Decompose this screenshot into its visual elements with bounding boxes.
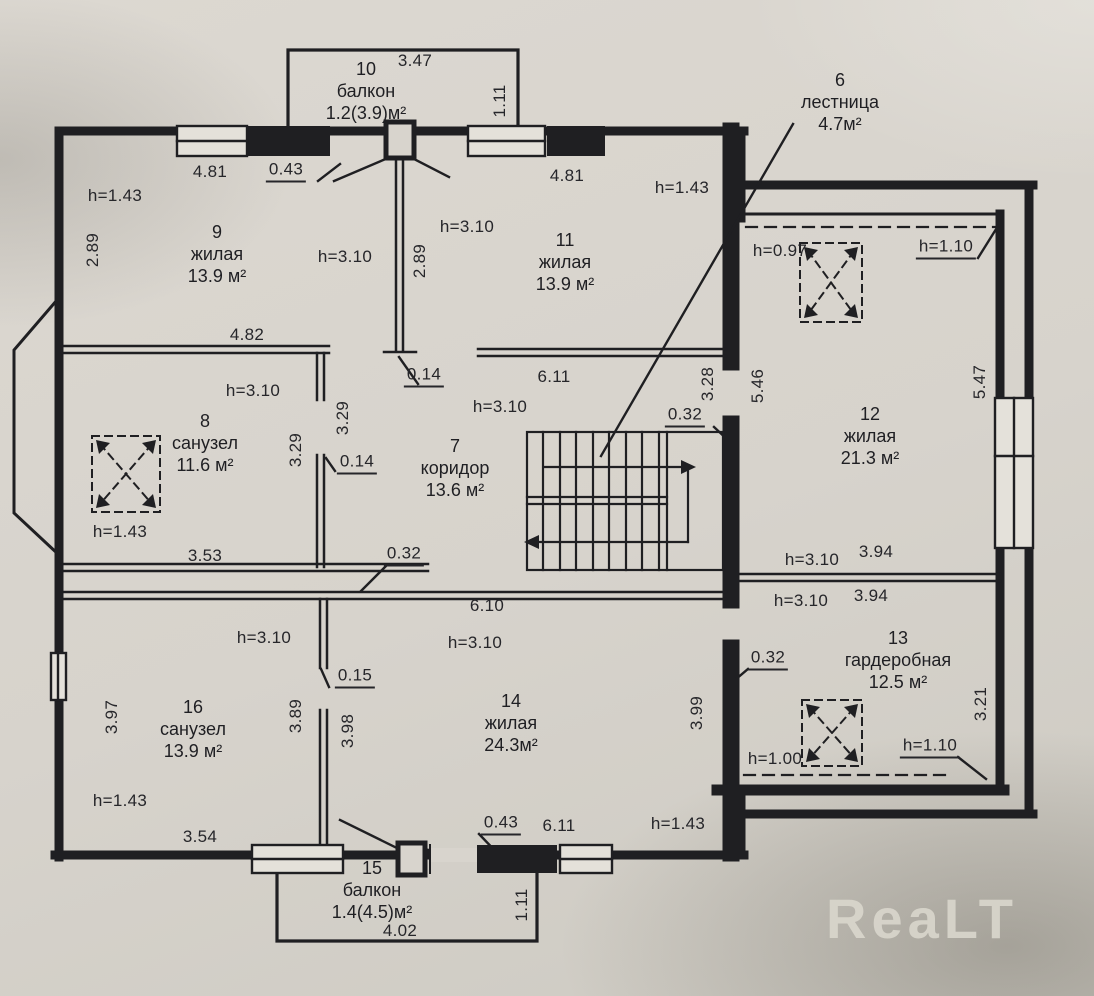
dim-partition-9-11: 2.89 — [410, 244, 430, 278]
dim-balcony15-depth: 1.11 — [512, 888, 532, 921]
floor-plan-drawing — [0, 0, 1094, 996]
room-label-10: 10балкон1.2(3.9)м² — [326, 59, 406, 125]
h-room11-right: h=1.43 — [655, 178, 709, 198]
h-room16: h=3.10 — [237, 628, 291, 648]
dim-partition16-gap: 0.15 — [335, 666, 375, 689]
dim-duct-width: 0.32 — [384, 544, 424, 567]
stairs — [527, 432, 723, 570]
dim-balcony15-width: 4.02 — [383, 921, 417, 941]
room-label-16: 16санузел13.9 м² — [160, 697, 226, 763]
dim-room9-left: 2.89 — [83, 233, 103, 267]
h-room12-bottom: h=3.10 — [785, 550, 839, 570]
dim-room9-top: 4.81 — [193, 162, 227, 182]
dim-room8-top: 4.82 — [230, 325, 264, 345]
dim-room16-left: 3.97 — [102, 700, 122, 734]
dim-balcony10-depth: 1.11 — [490, 84, 510, 117]
dim-corridor-bottom: 6.10 — [470, 596, 504, 616]
h-room9-left: h=1.43 — [88, 186, 142, 206]
dim-partition8-width: 0.14 — [337, 452, 377, 475]
h-room8-left: h=1.43 — [93, 522, 147, 542]
dim-room11-bottom: 6.11 — [537, 367, 570, 387]
dim-room13-top: 3.94 — [854, 586, 888, 606]
dim-room12-left: 5.46 — [748, 369, 768, 403]
dim-room11-top: 4.81 — [550, 166, 584, 186]
wardrobe-arrowheads — [96, 247, 858, 762]
h-room8: h=3.10 — [226, 381, 280, 401]
dim-stairwall-width: 0.32 — [665, 405, 705, 428]
room-label-8: 8санузел11.6 м² — [172, 411, 238, 477]
dim-top-offset: 0.43 — [266, 160, 306, 183]
h-corridor: h=3.10 — [473, 397, 527, 417]
dim-room11-right: 3.28 — [698, 367, 718, 401]
dim-room12-bottom: 3.94 — [859, 542, 893, 562]
room-label-11: 11жилая13.9 м² — [536, 230, 594, 296]
dim-room8-right: 3.29 — [286, 433, 306, 467]
h-room9: h=3.10 — [318, 247, 372, 267]
room-label-14: 14жилая24.3м² — [484, 691, 537, 757]
dim-corridor-left: 3.29 — [333, 401, 353, 435]
room-label-13: 13гардеробная12.5 м² — [845, 628, 951, 694]
dim-room14-right: 3.99 — [687, 696, 707, 730]
room-label-7: 7коридор13.6 м² — [421, 436, 490, 502]
h-room12-edge: h=1.10 — [916, 237, 976, 260]
room-label-9: 9жилая13.9 м² — [188, 222, 246, 288]
room-label-12: 12жилая21.3 м² — [841, 404, 899, 470]
h-room13-top: h=3.10 — [774, 591, 828, 611]
dim-room13-wall: 0.32 — [748, 648, 788, 671]
h-room12-low: h=0.97 — [753, 241, 807, 261]
dim-balcony-door: 0.43 — [481, 813, 521, 836]
dim-partition-width: 0.14 — [404, 365, 444, 388]
dim-room13-right: 3.21 — [971, 687, 991, 721]
h-room14: h=3.10 — [448, 633, 502, 653]
dim-room16-bottom: 3.54 — [183, 827, 217, 847]
dim-balcony10-width: 3.47 — [398, 51, 432, 71]
h-room13-edge: h=1.10 — [900, 736, 960, 759]
chimney-squares — [386, 122, 425, 875]
realt-watermark: ReaLT — [826, 886, 1076, 951]
h-room11: h=3.10 — [440, 217, 494, 237]
room-label-6: 6лестница4.7м² — [801, 70, 879, 136]
floor-plan-photo: 10балкон1.2(3.9)м² 6лестница4.7м² 9жилая… — [0, 0, 1094, 996]
left-bay-outline — [14, 300, 59, 555]
dim-room16-right: 3.89 — [286, 699, 306, 733]
dim-room14-bottom: 6.11 — [542, 816, 575, 836]
dim-room12-right: 5.47 — [970, 365, 990, 399]
dim-room8-bottom: 3.53 — [188, 546, 222, 566]
dim-room14-left: 3.98 — [338, 714, 358, 748]
room-label-15: 15балкон1.4(4.5)м² — [332, 858, 412, 924]
h-room13-low: h=1.00 — [748, 749, 802, 769]
h-room16-left: h=1.43 — [93, 791, 147, 811]
h-room14-right: h=1.43 — [651, 814, 705, 834]
